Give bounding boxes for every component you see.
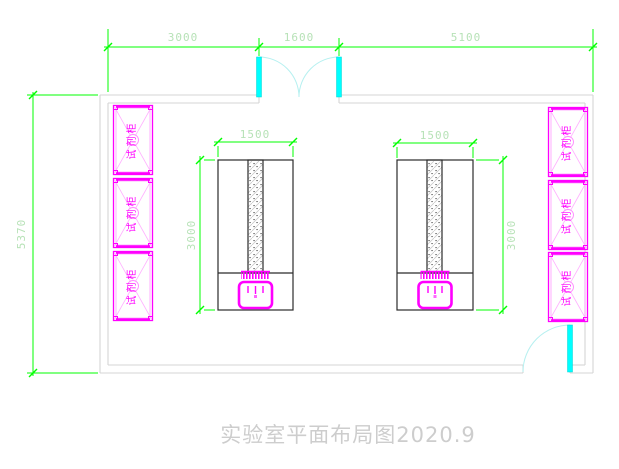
cabinet-label-right-1: 试剂柜	[562, 119, 574, 165]
single-door-icon	[523, 325, 573, 372]
room-walls	[100, 95, 593, 373]
cabinet-label-right-3: 试剂柜	[562, 264, 574, 310]
dim-top-right: 5100	[436, 31, 496, 45]
cabinet-label-right-2: 试剂柜	[562, 192, 574, 238]
dim-bench2-width: 1500	[405, 129, 465, 143]
dim-top-left: 3000	[153, 31, 213, 45]
cabinet-label-left-1: 试剂柜	[127, 117, 139, 163]
floor-plan-canvas: 3000 1600 5100 5370 1500 3000 1500 3000 …	[0, 0, 619, 469]
dim-bench1-width: 1500	[225, 128, 285, 142]
dim-bench1-depth: 3000	[185, 205, 199, 265]
drawing-title: 实验室平面布局图2020.9	[218, 420, 478, 450]
dim-left-height: 5370	[15, 204, 29, 264]
cabinet-label-left-3: 试剂柜	[127, 263, 139, 309]
dim-top-mid: 1600	[269, 31, 329, 45]
dim-bench2-depth: 3000	[505, 205, 519, 265]
double-door-icon	[257, 57, 342, 97]
cabinet-label-left-2: 试剂柜	[127, 190, 139, 236]
floor-plan-drawing	[0, 0, 619, 469]
dimension-lines	[27, 29, 597, 377]
